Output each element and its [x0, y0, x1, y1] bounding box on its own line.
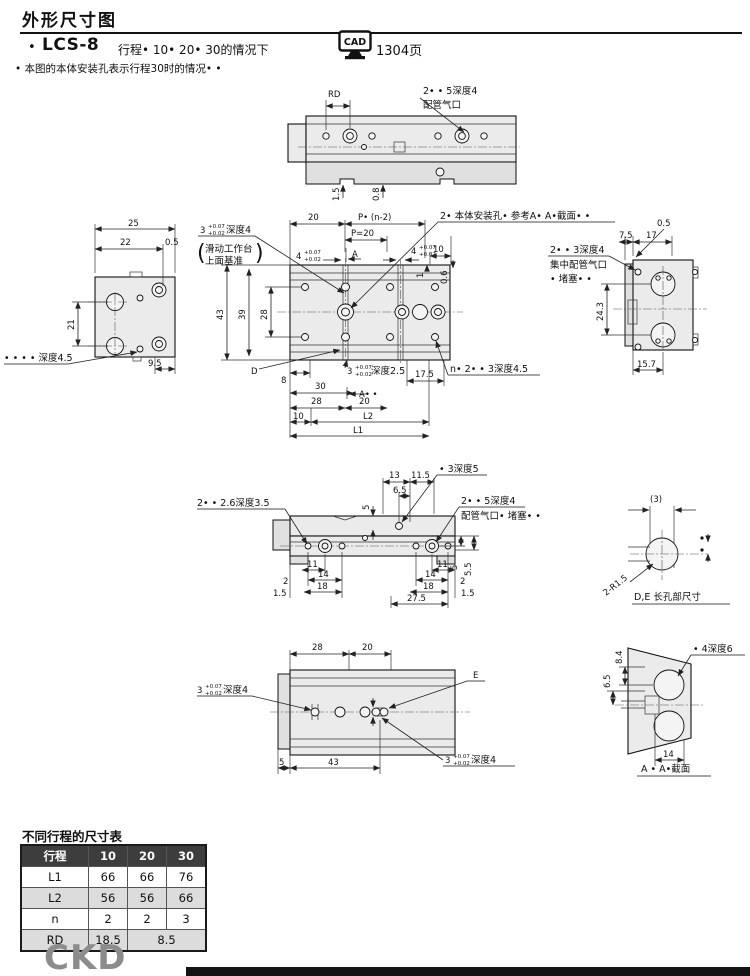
side-body — [273, 516, 465, 564]
port-line1: 2• • 3深度4 — [550, 244, 604, 256]
slot4-left-num: 4 — [296, 252, 301, 262]
cad-monitor-icon: CAD — [338, 30, 374, 60]
port-line3: • 堵塞• • — [550, 273, 592, 285]
bottom-top-dims: 28 20 — [290, 643, 391, 670]
dim-5-5: 5.5 — [464, 562, 474, 576]
dim-18-r: 18 — [423, 582, 434, 592]
dim-14-r: 14 — [425, 570, 436, 580]
slot-note-suffix: 深度4 — [223, 684, 248, 696]
l2-20: 56 — [128, 888, 167, 909]
dim-2-r: 2 — [460, 577, 465, 587]
dim-9-5: 9.5 — [148, 359, 162, 369]
n-hole-note: n• 2• • 3深度4.5 — [450, 363, 528, 375]
port-line1: 2• • 5深度4 — [461, 495, 515, 507]
cad-icon-label: CAD — [344, 37, 366, 48]
row-label-l1: L1 — [21, 867, 89, 888]
dim-11-l: 11 — [307, 560, 318, 570]
dim-30: 30 — [315, 382, 326, 392]
pitch-value: P=20 — [351, 229, 374, 239]
dim-0-8: 0.8 — [372, 187, 382, 201]
l1-30: 76 — [167, 867, 207, 888]
dim-1-5-r: 1.5 — [461, 589, 475, 599]
slot-note-num: 3 — [197, 686, 202, 696]
dim-27-5: 27.5 — [407, 594, 426, 604]
dim-7-5: 7.5 — [619, 231, 633, 241]
e-label: E — [473, 671, 478, 681]
dim-3-paren: (3) — [650, 495, 662, 505]
l1-10: 66 — [89, 867, 128, 888]
row-label-l2: L2 — [21, 888, 89, 909]
height-dims: 1.5 0.8 — [332, 185, 383, 201]
dim-5: 5 — [279, 758, 284, 768]
stroke-case-text: 行程• 10• 20• 30的情况下 — [118, 41, 269, 58]
dim-17-5: 17.5 — [415, 370, 434, 380]
right-end-body — [613, 260, 707, 352]
port-line2: 配管气口• 堵塞• • — [461, 510, 541, 522]
title-divider — [20, 32, 742, 34]
header-10: 10 — [89, 845, 128, 867]
bottom-body — [270, 670, 470, 755]
rd-20-30: 8.5 — [128, 930, 207, 952]
plan-bottom-dims: D 8 3 +0.07 +0.02 深度2.5 17.5 30 A• • 28 … — [251, 350, 444, 438]
stroke-table-title: 不同行程的尺寸表 — [22, 826, 122, 845]
dim-2-l: 2 — [283, 577, 288, 587]
dim-0-6: 0.6 — [440, 270, 450, 284]
rd-label: RD — [328, 90, 341, 100]
table-row-l1: L1 66 66 76 — [21, 867, 206, 888]
slot25-tol-lo: +0.02 — [355, 372, 372, 378]
dim-24-3: 24.3 — [596, 302, 606, 321]
l1-label: L1 — [353, 426, 363, 436]
page-title: 外形尺寸图 — [22, 6, 117, 31]
dim-0-5: 0.5 — [165, 238, 179, 248]
n-hole-callout: n• 2• • 3深度4.5 — [436, 341, 540, 375]
slot4-left-tol-hi: +0.07 — [304, 250, 321, 256]
dim-20: 20 — [362, 643, 373, 653]
dim-43: 43 — [328, 758, 339, 768]
dim-1-5-l: 1.5 — [273, 589, 287, 599]
n-10: 2 — [89, 909, 128, 930]
right-end-view-drawing: 0.5 7.5 17 24.3 15.7 2• • 3深度4 集中配管气口 • … — [545, 212, 750, 382]
header-20: 20 — [128, 845, 167, 867]
n-30: 3 — [167, 909, 207, 930]
page-footer-bar — [186, 967, 750, 976]
datum-line2: 上面基准 — [205, 255, 244, 267]
cad-page-ref: 1304页 — [376, 40, 422, 59]
dim-43: 43 — [216, 309, 226, 320]
depth-note: • • • • 深度4.5 — [4, 352, 73, 364]
table-row-l2: L2 56 56 66 — [21, 888, 206, 909]
a-section-marker: A — [352, 250, 358, 260]
mounting-hole-note: • 本图的本体安装孔表示行程30时的情况• • — [15, 61, 222, 76]
dim-20-top: 20 — [308, 213, 319, 223]
slot-detail-drawing: (3) 2-R1.5 D,E 长孔部尺寸 — [598, 488, 750, 610]
dim-18-l: 18 — [317, 582, 328, 592]
top-elevation-body — [288, 116, 520, 184]
slot4-left-tol-lo: +0.02 — [304, 257, 321, 263]
dim-5-top: 5 — [362, 505, 372, 510]
model-number: LCS-8 — [42, 35, 99, 55]
slot-note-tol-hi: +0.07 — [205, 684, 222, 690]
port-line2: 集中配管气口 — [550, 259, 607, 271]
left-end-view-drawing: 25 22 0.5 21 9.5 • • • • 深度4.5 — [2, 216, 198, 386]
port-note-line1: 2• • 5深度4 — [423, 85, 477, 97]
dim-13: 13 — [389, 471, 400, 481]
datum-paren-right: ) — [255, 241, 264, 266]
model-bullet: • — [28, 40, 36, 55]
dim-11-r: 11 — [437, 560, 448, 570]
d-slot-label: D — [251, 367, 258, 377]
row-label-n: n — [21, 909, 89, 930]
slot-note2-suffix: 深度4 — [471, 754, 496, 766]
radius-note: 2-R1.5 — [602, 573, 630, 598]
dim-10: 10 — [433, 245, 444, 255]
section-caption: A • A•截面 — [641, 763, 690, 775]
dim-1-5: 1.5 — [332, 187, 342, 201]
l1-20: 66 — [128, 867, 167, 888]
dim-22: 22 — [120, 238, 131, 248]
slot4-right-num: 4 — [411, 247, 416, 257]
section-aa-drawing: 8.4 6.5 14 • 4深度6 A • A•截面 — [593, 638, 750, 780]
dim-10-b: 10 — [293, 412, 304, 422]
dim-14: 14 — [663, 750, 674, 760]
central-port-callout: 2• • 3深度4 集中配管气口 • 堵塞• • — [548, 244, 635, 285]
n-20: 2 — [128, 909, 167, 930]
left-end-body — [88, 272, 175, 361]
stroke-table: 行程 10 20 30 L1 66 66 76 L2 56 56 66 n 2 … — [20, 844, 207, 952]
dim-14-l: 14 — [318, 570, 329, 580]
plan-body — [277, 258, 463, 366]
hole-note-top: • 3深度5 — [439, 463, 479, 475]
slot-note2-num: 3 — [445, 756, 450, 766]
stroke-table-header-row: 行程 10 20 30 — [21, 845, 206, 867]
datum-line1: 滑动工作台 — [205, 243, 253, 255]
dim-17: 17 — [646, 231, 657, 241]
dim-28: 28 — [312, 643, 323, 653]
dim-39: 39 — [238, 309, 248, 320]
slot25-num: 3 — [347, 367, 352, 377]
l2-10: 56 — [89, 888, 128, 909]
l2-30: 66 — [167, 888, 207, 909]
dim-28-left: 28 — [260, 309, 270, 320]
dim-25: 25 — [128, 219, 139, 229]
hole-note-left: 2• • 2.6深度3.5 — [197, 497, 270, 509]
l2-label: L2 — [363, 412, 373, 422]
dim-0-5: 0.5 — [657, 219, 671, 229]
dim-15-7: 15.7 — [637, 360, 656, 370]
dim-1: 1 — [416, 273, 426, 278]
slot25-tol-hi: +0.07 — [355, 365, 372, 371]
dim-11-5: 11.5 — [411, 471, 430, 481]
dim-21: 21 — [67, 319, 77, 330]
dim-28: 28 — [311, 397, 322, 407]
slot-note2-tol-hi: +0.07 — [453, 754, 470, 760]
catalog-page: 外形尺寸图 • LCS-8 行程• 10• 20• 30的情况下 CAD 130… — [0, 0, 750, 976]
hole-note: • 4深度6 — [693, 643, 733, 655]
top-elevation-drawing: RD 2• • 5深度4 配管气口 1.5 0.8 — [268, 84, 524, 202]
table-row-n: n 2 2 3 — [21, 909, 206, 930]
header-stroke: 行程 — [21, 845, 89, 867]
slot-detail-geometry — [628, 506, 708, 580]
slot-note-tol-hi: +0.07 — [208, 224, 225, 230]
slot-detail-caption: D,E 长孔部尺寸 — [634, 591, 701, 603]
dim-6-5: 6.5 — [603, 674, 613, 688]
dim-8: 8 — [281, 376, 286, 386]
section-body — [615, 648, 703, 754]
side-view-drawing: 2• • 2.6深度3.5 13 11.5 6.5 5 • 3深度5 2• • … — [195, 458, 575, 610]
header-30: 30 — [167, 845, 207, 867]
plan-left-dims: 43 39 28 — [216, 265, 301, 360]
bottom-view-drawing: 28 20 3 +0.07 +0.02 深度4 E 5 43 — [195, 638, 530, 780]
ckd-logo: CKD — [44, 938, 127, 976]
slot-note-suffix: 深度4 — [226, 224, 251, 236]
slot-note-num: 3 — [200, 226, 205, 236]
dim-6-5: 6.5 — [393, 486, 407, 496]
slot25-suffix: 深度2.5 — [371, 365, 405, 377]
dim-20: 20 — [359, 397, 370, 407]
pitch-label: P• (n-2) — [358, 213, 391, 223]
dim-8-4: 8.4 — [615, 650, 625, 664]
